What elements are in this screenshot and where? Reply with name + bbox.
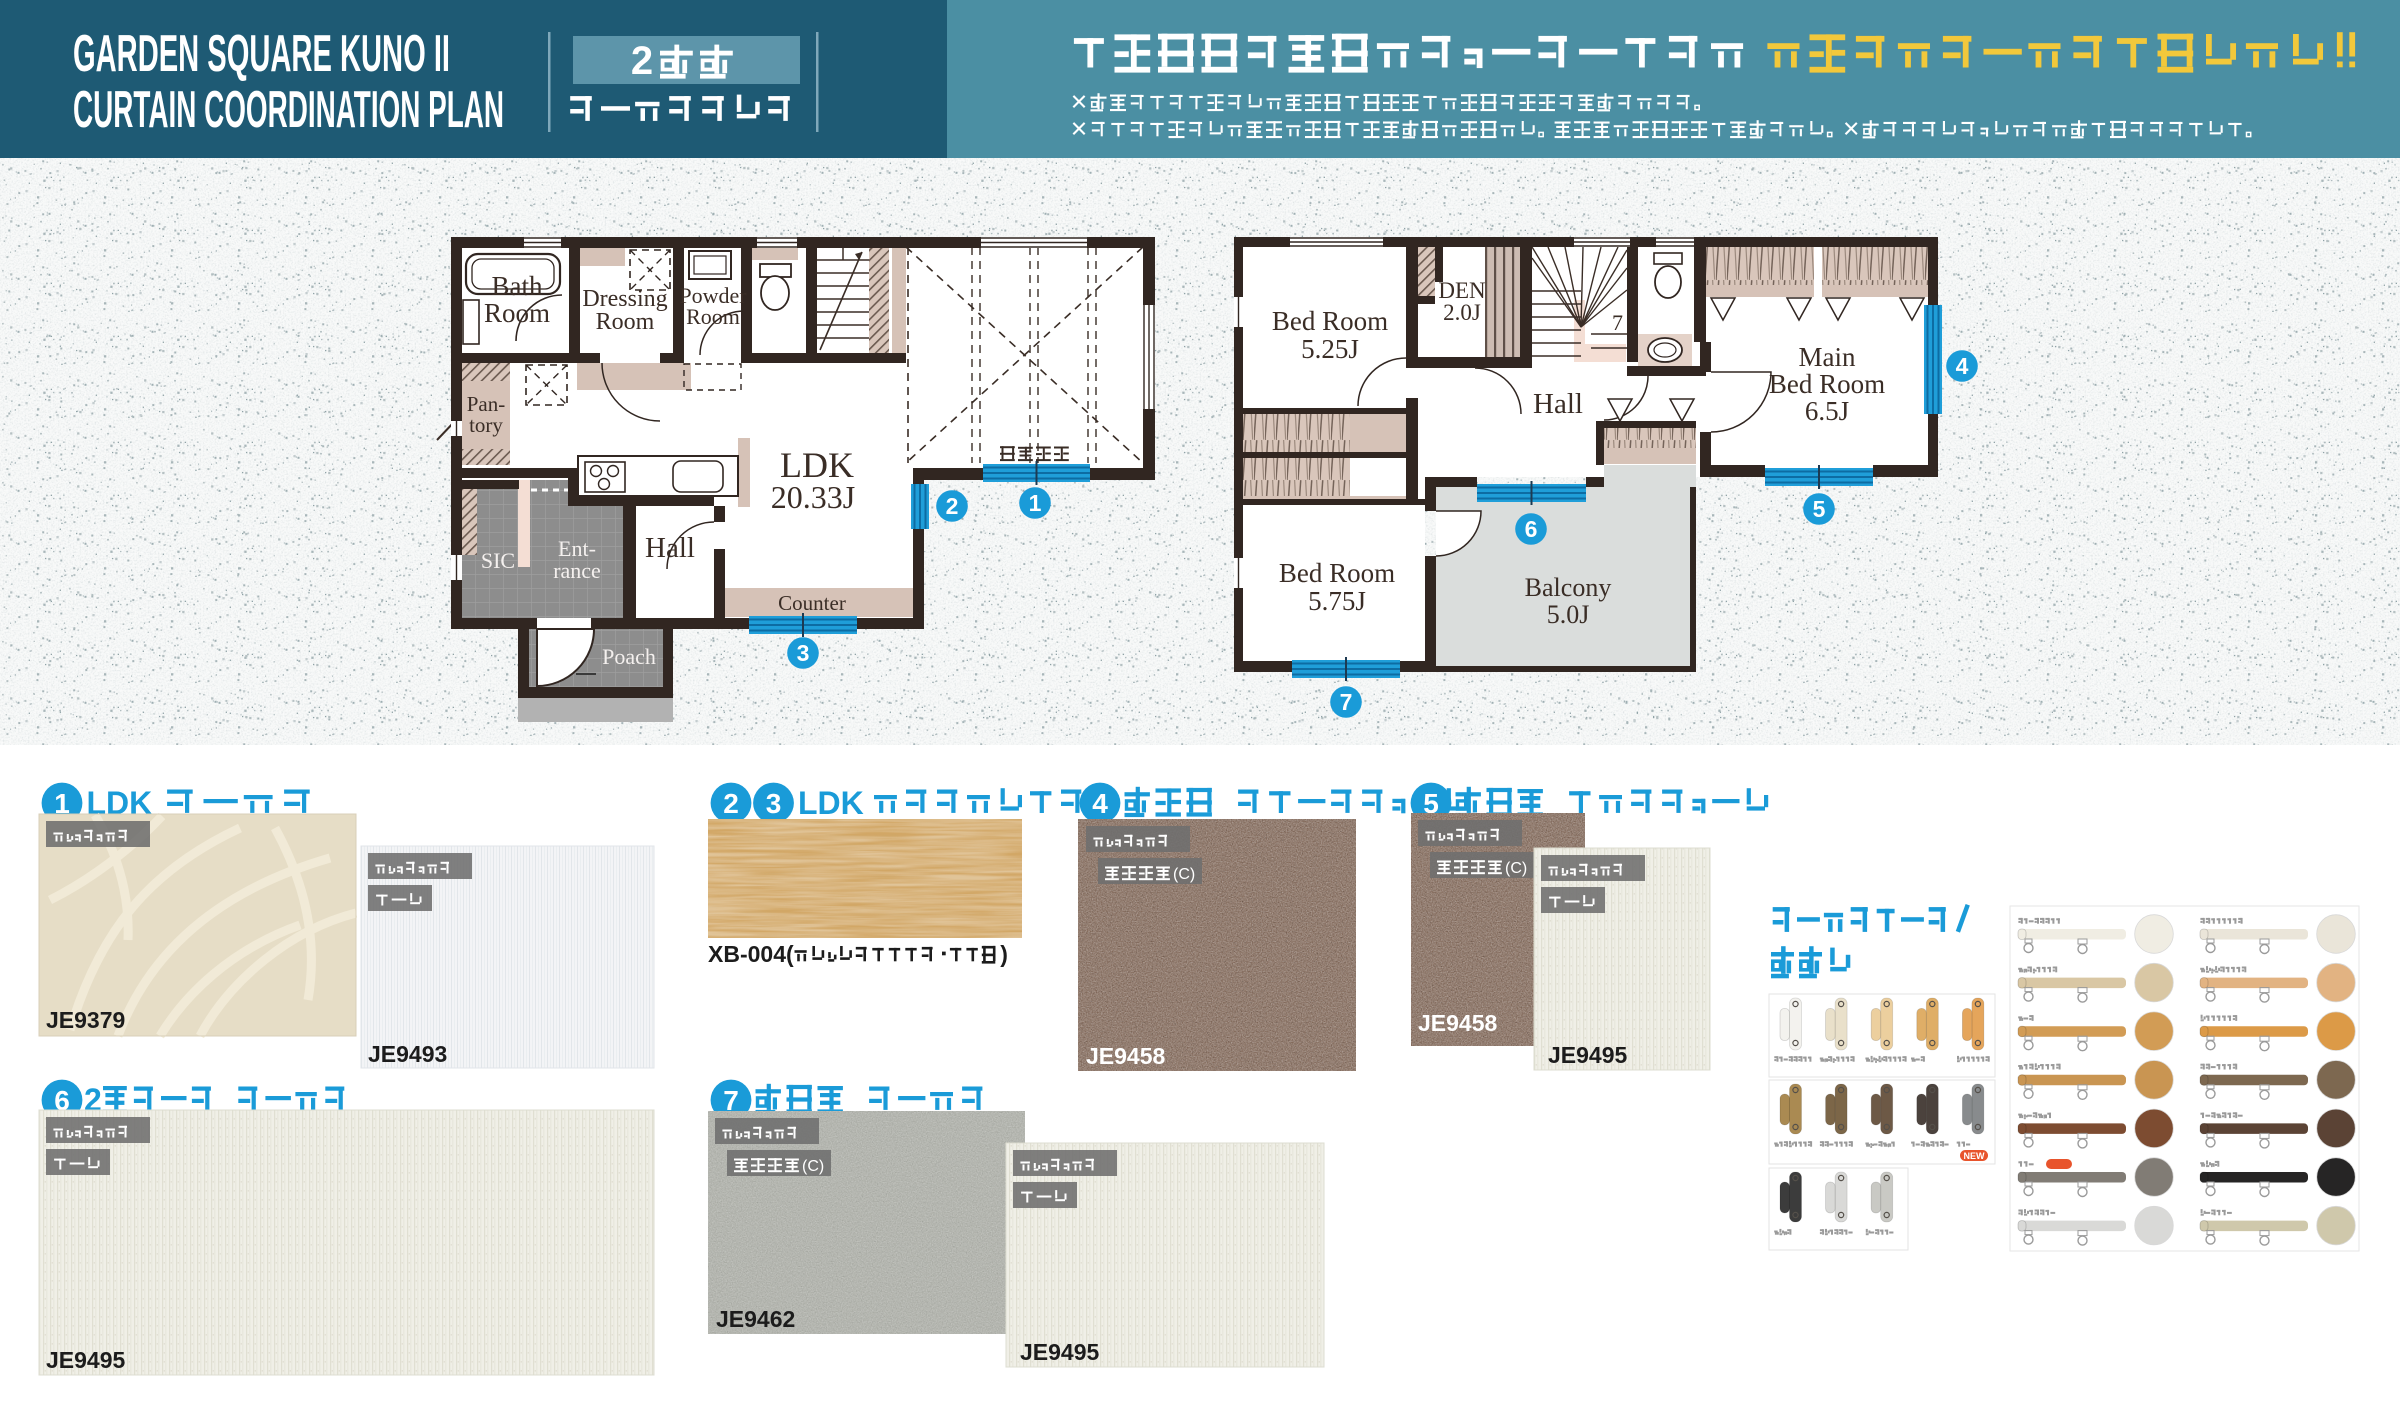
svg-text:Room: Room <box>596 309 655 335</box>
svg-text:5.0J: 5.0J <box>1547 600 1590 629</box>
svg-text:JE9493: JE9493 <box>368 1041 447 1067</box>
svg-text:JE9379: JE9379 <box>46 1007 125 1033</box>
svg-text:JE9458: JE9458 <box>1418 1010 1498 1036</box>
svg-text:2: 2 <box>946 493 959 519</box>
svg-text:tory: tory <box>469 413 503 437</box>
svg-text:rance: rance <box>553 558 601 583</box>
svg-text:GARDEN SQUARE KUNO II: GARDEN SQUARE KUNO II <box>73 25 450 83</box>
svg-text:4: 4 <box>1956 353 1969 379</box>
svg-text:7: 7 <box>1340 689 1353 715</box>
svg-text:2.0J: 2.0J <box>1443 300 1481 325</box>
svg-text:(C): (C) <box>802 1158 824 1175</box>
svg-text:LDK: LDK <box>798 785 864 821</box>
svg-text:JE9458: JE9458 <box>1086 1043 1166 1069</box>
svg-text:5: 5 <box>1813 496 1826 522</box>
svg-text:Bed Room: Bed Room <box>1769 369 1885 399</box>
svg-text:3: 3 <box>797 640 810 666</box>
svg-text:2: 2 <box>723 788 739 819</box>
svg-text:Hall: Hall <box>645 532 695 564</box>
svg-text:NEW: NEW <box>1964 1151 1986 1161</box>
svg-text:Poach: Poach <box>602 644 656 669</box>
svg-text:Main: Main <box>1799 342 1856 372</box>
svg-text:6.5J: 6.5J <box>1805 396 1849 426</box>
svg-text:7: 7 <box>1612 310 1623 335</box>
svg-text:JE9495: JE9495 <box>1020 1339 1100 1365</box>
svg-text:1: 1 <box>1029 490 1042 516</box>
svg-text:3: 3 <box>766 788 782 819</box>
svg-text:Hall: Hall <box>1533 388 1583 420</box>
svg-text:6: 6 <box>1525 516 1538 542</box>
svg-text:JE9495: JE9495 <box>1548 1042 1628 1068</box>
svg-text:XB-004(: XB-004( <box>708 941 794 967</box>
svg-text:JE9462: JE9462 <box>716 1306 795 1332</box>
svg-text:Room: Room <box>484 298 550 328</box>
svg-text:Balcony: Balcony <box>1525 573 1612 602</box>
svg-text:(C): (C) <box>1505 860 1527 877</box>
svg-text:): ) <box>1000 941 1008 967</box>
svg-text:JE9495: JE9495 <box>46 1347 126 1373</box>
svg-text:4: 4 <box>1092 788 1108 819</box>
svg-text:2: 2 <box>631 39 653 83</box>
svg-text:Counter: Counter <box>778 591 846 615</box>
svg-text:5.25J: 5.25J <box>1301 334 1359 364</box>
svg-text:SIC: SIC <box>481 548 515 573</box>
svg-text:20.33J: 20.33J <box>771 479 855 515</box>
svg-text:Bed Room: Bed Room <box>1279 558 1395 588</box>
svg-text:Bath: Bath <box>492 271 543 301</box>
svg-text:(C): (C) <box>1173 866 1195 883</box>
svg-text:5.75J: 5.75J <box>1308 586 1366 616</box>
svg-text:Room: Room <box>686 304 740 329</box>
svg-text:Bed Room: Bed Room <box>1272 306 1388 336</box>
svg-text:CURTAIN COORDINATION PLAN: CURTAIN COORDINATION PLAN <box>73 81 504 139</box>
